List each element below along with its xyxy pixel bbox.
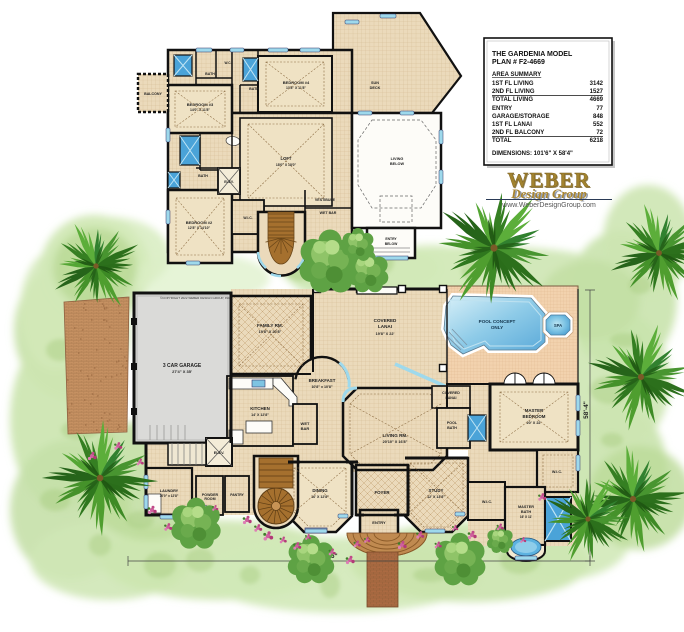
svg-text:19'8" X 22': 19'8" X 22' [376,332,395,336]
svg-text:THE GARDENIA MODEL: THE GARDENIA MODEL [492,51,573,58]
svg-text:BELOW: BELOW [385,242,398,246]
svg-text:SPA: SPA [554,323,562,328]
svg-text:1ST FL LANAI: 1ST FL LANAI [492,122,532,128]
svg-text:W.C.: W.C. [225,61,232,65]
svg-text:COVERED: COVERED [374,318,397,323]
svg-text:10'8" x 10'8": 10'8" x 10'8" [311,385,332,389]
svg-text:20'10" X 16'8": 20'10" X 16'8" [383,440,408,444]
svg-text:4669: 4669 [590,97,604,103]
svg-text:KITCHEN: KITCHEN [250,406,270,411]
svg-text:12' X 13'8": 12' X 13'8" [427,495,445,499]
svg-text:MASTER: MASTER [518,505,534,509]
svg-text:ELEV.: ELEV. [214,451,225,455]
svg-text:BATH: BATH [521,510,532,514]
svg-text:6218: 6218 [590,138,604,144]
svg-text:BATH: BATH [205,72,215,76]
svg-text:GARAGE/STORAGE: GARAGE/STORAGE [492,114,550,120]
svg-text:BREAKFAST: BREAKFAST [309,378,336,383]
svg-text:Design Group: Design Group [510,186,587,201]
svg-text:BATH: BATH [249,87,259,91]
svg-text:ROOM: ROOM [204,497,215,501]
svg-text:FOYER: FOYER [374,490,390,495]
svg-text:www.WeberDesignGroup.com: www.WeberDesignGroup.com [501,202,596,209]
svg-text:BEDROOM: BEDROOM [523,414,546,419]
svg-text:18'0" X 18'0": 18'0" X 18'0" [276,163,297,167]
svg-text:WET BAR: WET BAR [320,211,337,215]
svg-text:ELEV.: ELEV. [224,180,234,184]
svg-text:LAUNDRY: LAUNDRY [160,489,179,493]
svg-text:552: 552 [593,122,604,128]
svg-text:PLAN # F2-4669: PLAN # F2-4669 [492,59,545,66]
svg-text:13'8" X 11'8": 13'8" X 11'8" [286,86,306,90]
svg-text:20' X 22': 20' X 22' [527,421,542,425]
svg-text:COVERED: COVERED [442,391,460,395]
svg-text:ENTRY: ENTRY [372,520,386,525]
svg-text:ENTRY: ENTRY [492,106,512,112]
svg-text:58'-4": 58'-4" [583,401,590,419]
svg-text:©COPYRIGHT 2022 WEBER DESIGN G: ©COPYRIGHT 2022 WEBER DESIGN GROUP, INC. [160,296,231,300]
svg-text:LOFT: LOFT [281,156,292,161]
svg-text:POOL CONCEPT: POOL CONCEPT [479,319,516,324]
svg-text:ENTRY: ENTRY [385,237,397,241]
svg-text:72: 72 [596,130,603,136]
svg-text:2ND FL BALCONY: 2ND FL BALCONY [492,130,544,136]
svg-text:W.I.C.: W.I.C. [482,500,492,504]
svg-text:PANTRY: PANTRY [230,493,244,497]
svg-text:27'4" X 35': 27'4" X 35' [172,369,192,374]
svg-text:BALCONY: BALCONY [144,92,162,96]
svg-text:DIMENSIONS: 101'6" X 58'4": DIMENSIONS: 101'6" X 58'4" [492,151,573,157]
svg-text:BATH: BATH [198,174,208,178]
svg-text:LIVING: LIVING [391,157,404,161]
svg-text:SUN: SUN [371,81,379,85]
svg-text:1527: 1527 [590,89,604,95]
svg-text:W.I.C.: W.I.C. [243,216,252,220]
svg-text:VESTIBULE: VESTIBULE [315,198,336,202]
svg-text:LANAI: LANAI [378,324,392,329]
svg-text:POOL: POOL [447,421,458,425]
svg-text:10'0" x 12'8": 10'0" x 12'8" [160,494,179,498]
svg-text:DECK: DECK [370,86,381,90]
svg-text:AREA SUMMARY: AREA SUMMARY [492,72,541,78]
svg-text:BATH: BATH [447,426,457,430]
svg-text:DINING: DINING [312,488,328,493]
svg-text:848: 848 [593,114,604,120]
svg-text:12'8" X 14'10": 12'8" X 14'10" [188,226,211,230]
svg-text:BEDROOM #2: BEDROOM #2 [186,220,213,225]
svg-text:W.I.C.: W.I.C. [552,470,562,474]
svg-text:TOTAL LIVING: TOTAL LIVING [492,97,533,103]
svg-text:BAR: BAR [301,426,310,431]
svg-text:19'8" X 20'8": 19'8" X 20'8" [259,330,282,334]
svg-text:BEDROOM #4: BEDROOM #4 [283,80,310,85]
svg-text:TOTAL: TOTAL [492,138,512,144]
svg-text:16' X 12'8": 16' X 12'8" [311,495,329,499]
svg-text:ONLY: ONLY [491,325,503,330]
svg-text:2ND FL LIVING: 2ND FL LIVING [492,89,535,95]
svg-text:STUDY: STUDY [429,488,444,493]
svg-text:16' X 11': 16' X 11' [520,515,533,519]
svg-text:BELOW: BELOW [390,162,405,166]
svg-text:1ST FL LIVING: 1ST FL LIVING [492,81,534,87]
svg-text:77: 77 [596,106,603,112]
svg-text:3142: 3142 [590,81,604,87]
svg-text:14' X 12'8": 14' X 12'8" [251,413,269,417]
